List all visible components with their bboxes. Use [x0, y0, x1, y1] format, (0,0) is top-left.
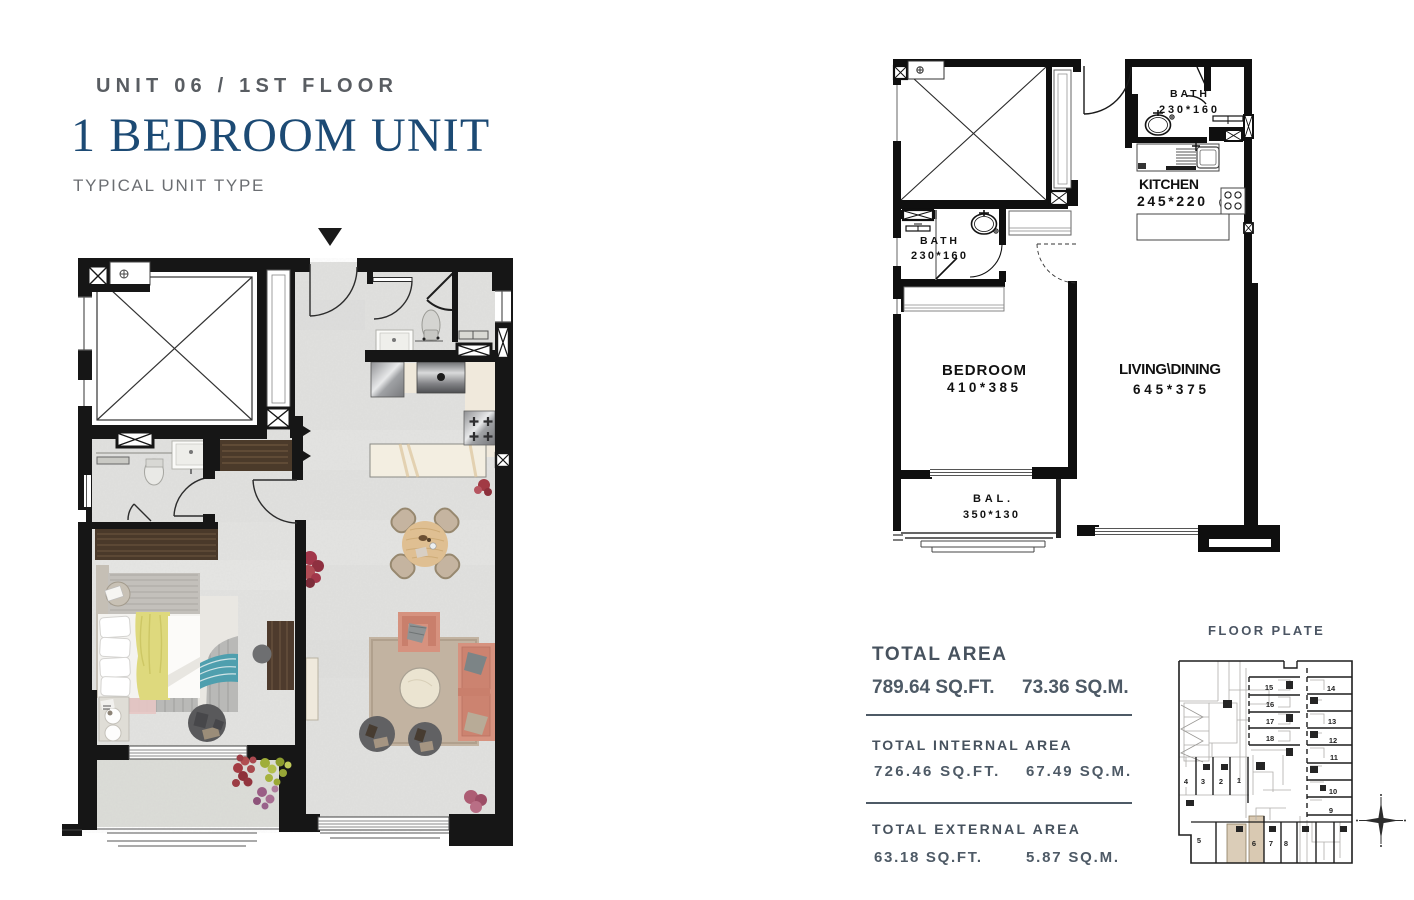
svg-text:1: 1	[1237, 776, 1241, 785]
svg-text:10: 10	[1329, 787, 1337, 796]
svg-text:230*160: 230*160	[911, 250, 966, 262]
svg-text:LIVING\DINING: LIVING\DINING	[1119, 361, 1221, 378]
svg-text:7: 7	[1269, 839, 1273, 848]
svg-text:KITCHEN: KITCHEN	[1139, 176, 1199, 192]
svg-text:BEDROOM: BEDROOM	[942, 362, 1026, 379]
svg-text:14: 14	[1327, 684, 1336, 693]
svg-text:13: 13	[1328, 717, 1336, 726]
svg-text:BATH: BATH	[920, 235, 957, 247]
svg-text:16: 16	[1266, 700, 1274, 709]
svg-text:BAL.: BAL.	[973, 493, 1010, 505]
svg-text:18: 18	[1266, 734, 1274, 743]
svg-text:12: 12	[1329, 736, 1337, 745]
svg-text:17: 17	[1266, 717, 1274, 726]
svg-text:BATH: BATH	[1170, 88, 1207, 100]
svg-text:6: 6	[1252, 839, 1256, 848]
svg-text:245*220: 245*220	[1137, 193, 1205, 209]
svg-text:9: 9	[1329, 806, 1333, 815]
svg-text:4: 4	[1184, 777, 1189, 786]
svg-text:15: 15	[1265, 683, 1273, 692]
svg-text:8: 8	[1284, 839, 1288, 848]
svg-text:3: 3	[1201, 777, 1205, 786]
svg-text:350*130: 350*130	[963, 509, 1018, 521]
svg-text:5: 5	[1197, 836, 1201, 845]
svg-text:230*160: 230*160	[1159, 104, 1217, 116]
svg-text:2: 2	[1219, 777, 1223, 786]
svg-text:410*385: 410*385	[947, 380, 1018, 395]
svg-text:11: 11	[1330, 753, 1338, 762]
svg-text:645*375: 645*375	[1133, 382, 1206, 397]
